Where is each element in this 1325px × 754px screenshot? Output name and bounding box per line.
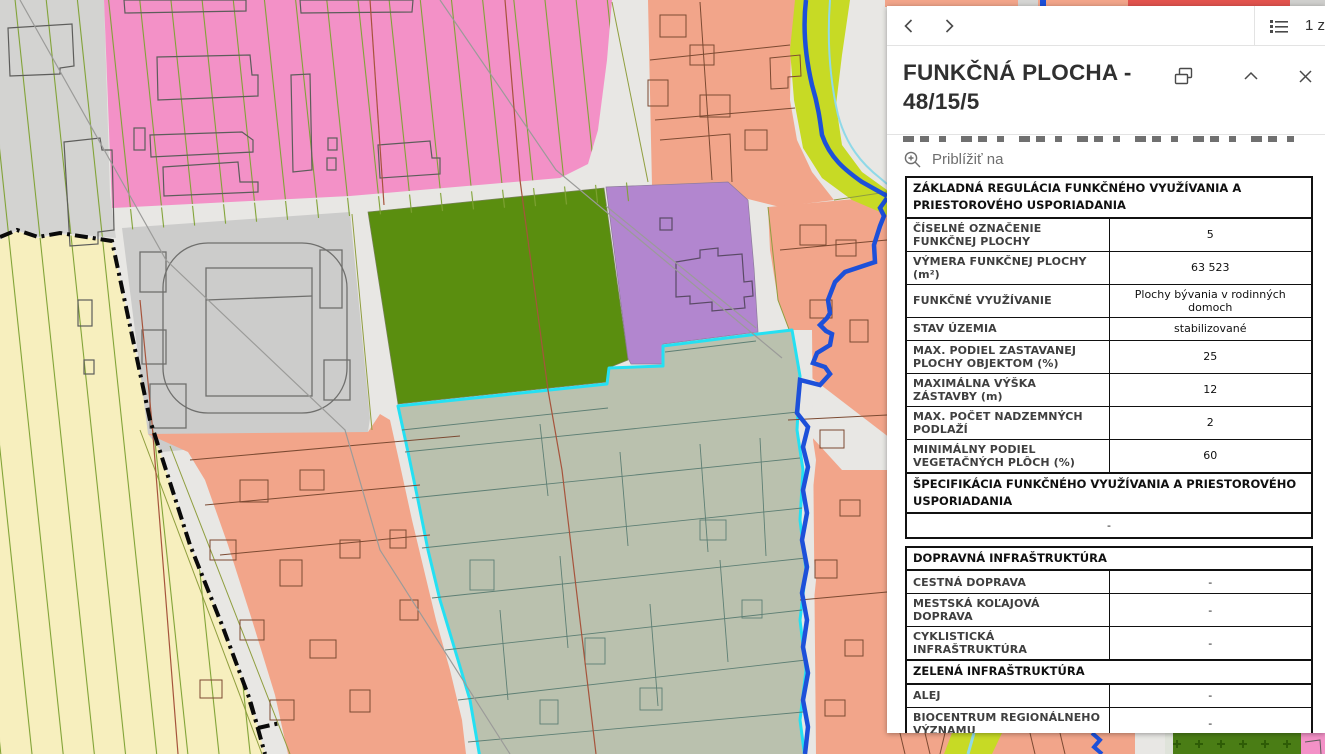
table-row: MAX. POČET NADZEMNÝCH PODLAŽÍ2 — [906, 406, 1312, 439]
attr-value: - — [906, 513, 1312, 538]
attr-value: Plochy bývania v rodinných domoch — [1109, 284, 1312, 317]
popup-table: ZÁKLADNÁ REGULÁCIA FUNKČNÉHO VYUŽÍVANIA … — [905, 176, 1313, 539]
table-row: - — [906, 513, 1312, 538]
zoom-to-link[interactable]: Priblížiť na — [932, 151, 1003, 168]
attr-label: FUNKČNÉ VYUŽÍVANIE — [906, 284, 1109, 317]
table-row: STAV ÚZEMIAstabilizované — [906, 317, 1312, 340]
table-row: ČÍSELNÉ OZNAČENIE FUNKČNEJ PLOCHY5 — [906, 218, 1312, 252]
close-icon — [1298, 69, 1313, 84]
prev-feature-button[interactable] — [893, 10, 925, 42]
section-header: ZELENÁ INFRAŠTRUKTÚRA — [906, 660, 1312, 683]
table-row: CYKLISTICKÁ INFRAŠTRUKTÚRA- — [906, 627, 1312, 661]
attr-value: stabilizované — [1109, 317, 1312, 340]
attr-label: MAX. POČET NADZEMNÝCH PODLAŽÍ — [906, 406, 1109, 439]
attr-value: - — [1109, 684, 1312, 708]
map-bottom-strip — [885, 733, 1325, 754]
table-row: CESTNÁ DOPRAVA- — [906, 570, 1312, 594]
popup-table: DOPRAVNÁ INFRAŠTRUKTÚRACESTNÁ DOPRAVA-ME… — [905, 546, 1313, 733]
section-header: ZÁKLADNÁ REGULÁCIA FUNKČNÉHO VYUŽÍVANIA … — [906, 177, 1312, 218]
attr-value: 63 523 — [1109, 251, 1312, 284]
attr-label: BIOCENTRUM REGIONÁLNEHO VÝZNAMU — [906, 707, 1109, 733]
table-row: MINIMÁLNY PODIEL VEGETAČNÝCH PLÔCH (%)60 — [906, 439, 1312, 473]
zone-park-green[interactable] — [368, 188, 628, 404]
app-viewport: { "panel": { "pager_count_label": "1 z",… — [0, 0, 1325, 754]
attr-label: MAX. PODIEL ZASTAVANEJ PLOCHY OBJEKTOM (… — [906, 340, 1109, 373]
popup-title: FUNKČNÁ PLOCHA - 48/15/5 — [903, 58, 1183, 116]
topbar-divider — [1254, 6, 1255, 45]
attr-label: ČÍSELNÉ OZNAČENIE FUNKČNEJ PLOCHY — [906, 218, 1109, 252]
attr-label: MESTSKÁ KOĽAJOVÁ DOPRAVA — [906, 594, 1109, 627]
collapse-icon — [1243, 71, 1259, 81]
popup-panel: 1 z FUNKČNÁ PLOCHA - 48/15/5 — [887, 6, 1325, 733]
zoom-to-icon — [903, 150, 922, 169]
table-row: FUNKČNÉ VYUŽÍVANIEPlochy bývania v rodin… — [906, 284, 1312, 317]
attr-label: MAXIMÁLNA VÝŠKA ZÁSTAVBY (m) — [906, 373, 1109, 406]
close-button[interactable] — [1289, 60, 1321, 92]
table-row: MAX. PODIEL ZASTAVANEJ PLOCHY OBJEKTOM (… — [906, 340, 1312, 373]
attr-value: - — [1109, 627, 1312, 661]
dock-button[interactable] — [1167, 60, 1199, 92]
attr-label: VÝMERA FUNKČNEJ PLOCHY (m²) — [906, 251, 1109, 284]
attr-value: 60 — [1109, 439, 1312, 473]
table-row: ALEJ- — [906, 684, 1312, 708]
attr-label: MINIMÁLNY PODIEL VEGETAČNÝCH PLÔCH (%) — [906, 439, 1109, 473]
chevron-left-icon — [900, 17, 918, 35]
attr-label: ALEJ — [906, 684, 1109, 708]
table-row: MAXIMÁLNA VÝŠKA ZÁSTAVBY (m)12 — [906, 373, 1312, 406]
table-row: VÝMERA FUNKČNEJ PLOCHY (m²)63 523 — [906, 251, 1312, 284]
clipped-row-remnant — [903, 136, 1309, 142]
table-row: MESTSKÁ KOĽAJOVÁ DOPRAVA- — [906, 594, 1312, 627]
attr-label: CESTNÁ DOPRAVA — [906, 570, 1109, 594]
dock-icon — [1174, 67, 1193, 86]
zoom-to-row[interactable]: Priblížiť na — [887, 142, 1325, 176]
attr-value: 2 — [1109, 406, 1312, 439]
attr-value: - — [1109, 707, 1312, 733]
chevron-right-icon — [940, 17, 958, 35]
feature-count: 1 z — [1305, 17, 1325, 34]
popup-pager-bar: 1 z — [887, 6, 1325, 46]
collapse-button[interactable] — [1235, 60, 1267, 92]
next-feature-button[interactable] — [933, 10, 965, 42]
attr-value: - — [1109, 570, 1312, 594]
popup-content: Priblížiť na ZÁKLADNÁ REGULÁCIA FUNKČNÉH… — [887, 135, 1325, 733]
feature-list-icon — [1269, 17, 1289, 35]
attr-value: - — [1109, 594, 1312, 627]
attr-value: 12 — [1109, 373, 1312, 406]
feature-list-button[interactable] — [1263, 10, 1295, 42]
attr-label: STAV ÚZEMIA — [906, 317, 1109, 340]
table-row: BIOCENTRUM REGIONÁLNEHO VÝZNAMU- — [906, 707, 1312, 733]
attr-label: CYKLISTICKÁ INFRAŠTRUKTÚRA — [906, 627, 1109, 661]
popup-titlebar: FUNKČNÁ PLOCHA - 48/15/5 — [887, 46, 1325, 135]
section-header: DOPRAVNÁ INFRAŠTRUKTÚRA — [906, 547, 1312, 570]
section-header: ŠPECIFIKÁCIA FUNKČNÉHO VYUŽÍVANIA A PRIE… — [906, 473, 1312, 514]
attr-value: 25 — [1109, 340, 1312, 373]
attr-value: 5 — [1109, 218, 1312, 252]
attribute-tables: ZÁKLADNÁ REGULÁCIA FUNKČNÉHO VYUŽÍVANIA … — [887, 176, 1325, 733]
